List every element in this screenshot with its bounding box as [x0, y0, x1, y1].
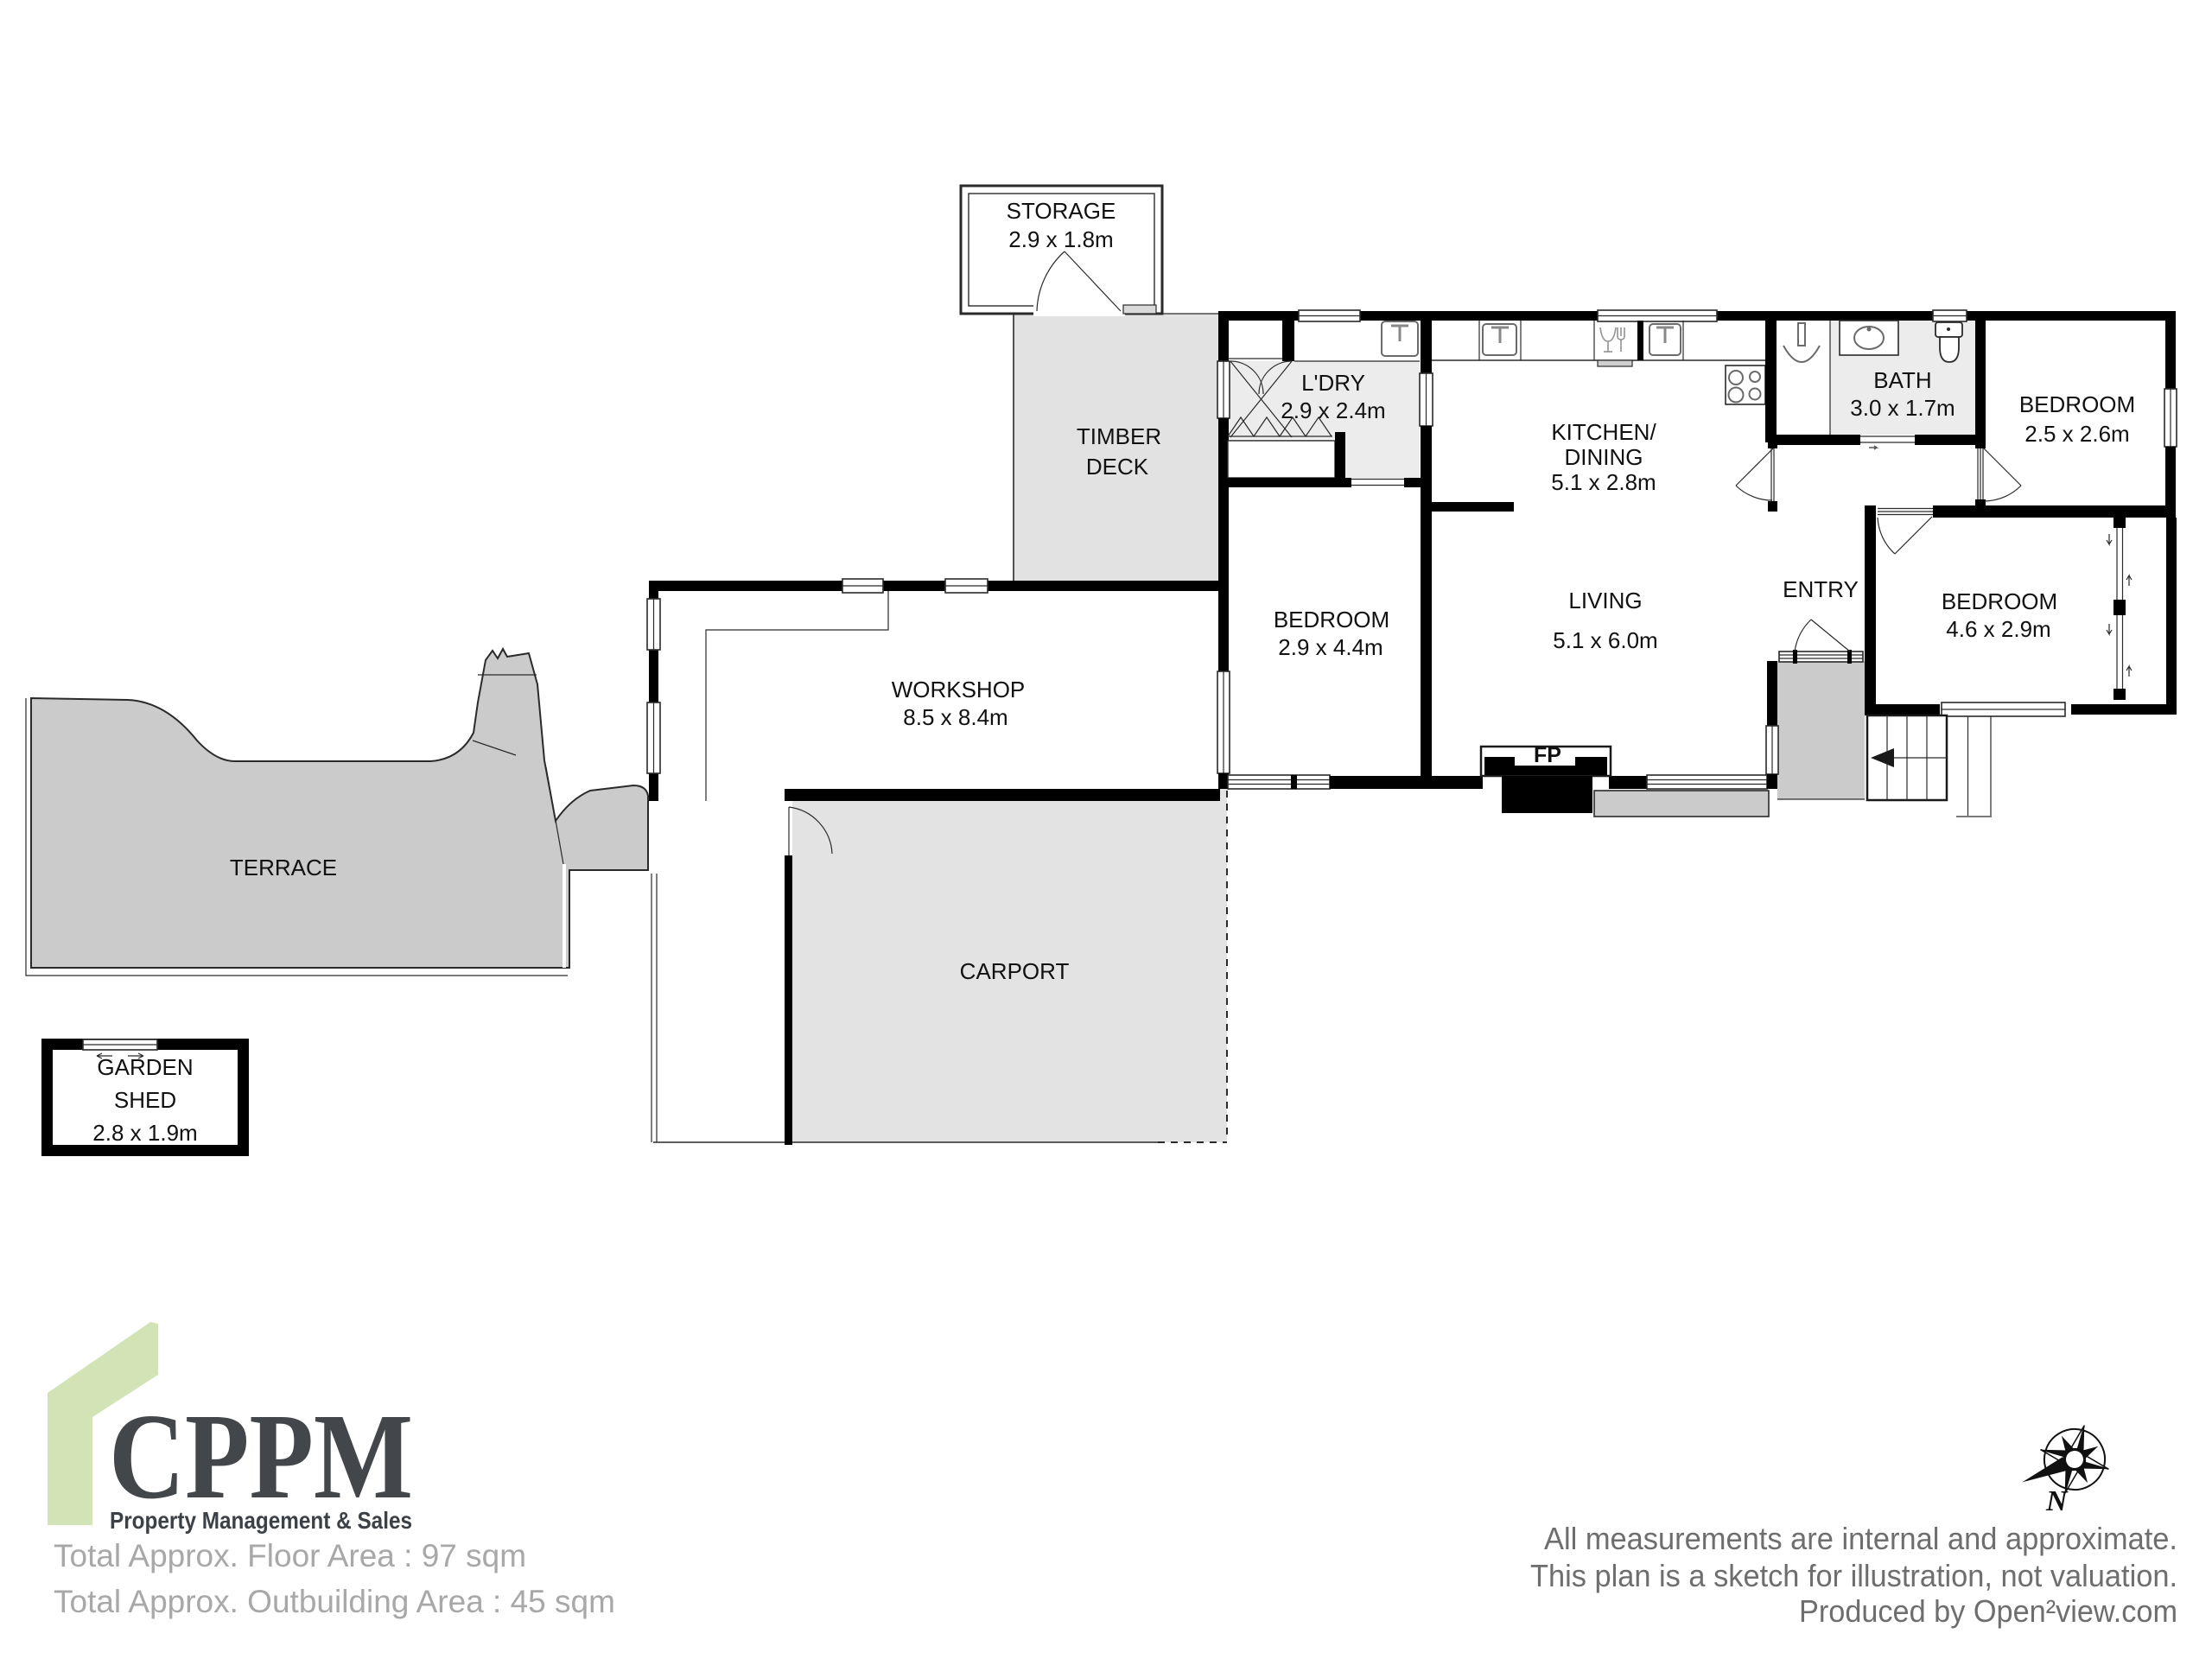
svg-text:L'DRY: L'DRY: [1301, 370, 1365, 396]
svg-text:CPPM: CPPM: [109, 1388, 413, 1524]
svg-text:All measurements are internal: All measurements are internal and approx…: [1544, 1521, 2177, 1556]
svg-text:FP: FP: [1534, 743, 1561, 767]
svg-text:BEDROOM: BEDROOM: [1942, 588, 2057, 614]
svg-text:STORAGE: STORAGE: [1007, 198, 1116, 224]
svg-text:LIVING: LIVING: [1568, 588, 1642, 613]
svg-text:2.8 x 1.9m: 2.8 x 1.9m: [92, 1120, 197, 1146]
svg-text:Property Management & Sales: Property Management & Sales: [110, 1507, 412, 1534]
svg-text:Total Approx. Floor Area : 97: Total Approx. Floor Area : 97 sqm: [54, 1538, 526, 1573]
svg-text:5.1 x 2.8m: 5.1 x 2.8m: [1551, 469, 1656, 495]
svg-text:This plan is a sketch for illu: This plan is a sketch for illustration, …: [1530, 1558, 2177, 1593]
svg-text:2.9 x 4.4m: 2.9 x 4.4m: [1278, 634, 1382, 660]
svg-text:BEDROOM: BEDROOM: [1274, 607, 1389, 632]
svg-text:KITCHEN/: KITCHEN/: [1551, 419, 1656, 445]
svg-text:BEDROOM: BEDROOM: [2019, 391, 2135, 417]
svg-text:DINING: DINING: [1565, 444, 1643, 470]
svg-text:SHED: SHED: [114, 1087, 176, 1113]
svg-text:2.5 x 2.6m: 2.5 x 2.6m: [2024, 421, 2129, 447]
svg-text:2.9 x 2.4m: 2.9 x 2.4m: [1281, 397, 1385, 423]
svg-text:3.0 x 1.7m: 3.0 x 1.7m: [1850, 395, 1955, 421]
svg-text:Produced by Open²view.com: Produced by Open²view.com: [1799, 1593, 2177, 1629]
svg-text:GARDEN: GARDEN: [97, 1054, 193, 1080]
svg-text:5.1 x 6.0m: 5.1 x 6.0m: [1553, 627, 1657, 653]
svg-text:TIMBER: TIMBER: [1077, 423, 1161, 449]
svg-text:ENTRY: ENTRY: [1783, 576, 1859, 602]
svg-text:BATH: BATH: [1873, 367, 1931, 393]
svg-text:8.5 x 8.4m: 8.5 x 8.4m: [903, 704, 1007, 730]
svg-text:4.6 x 2.9m: 4.6 x 2.9m: [1946, 616, 2050, 642]
svg-text:WORKSHOP: WORKSHOP: [892, 677, 1026, 702]
svg-text:DECK: DECK: [1086, 454, 1149, 480]
svg-text:TERRACE: TERRACE: [230, 855, 337, 880]
svg-text:Total Approx. Outbuilding Area: Total Approx. Outbuilding Area : 45 sqm: [54, 1584, 615, 1619]
svg-text:CARPORT: CARPORT: [960, 958, 1070, 984]
svg-text:2.9 x 1.8m: 2.9 x 1.8m: [1008, 226, 1113, 252]
svg-text:N: N: [2045, 1485, 2069, 1517]
